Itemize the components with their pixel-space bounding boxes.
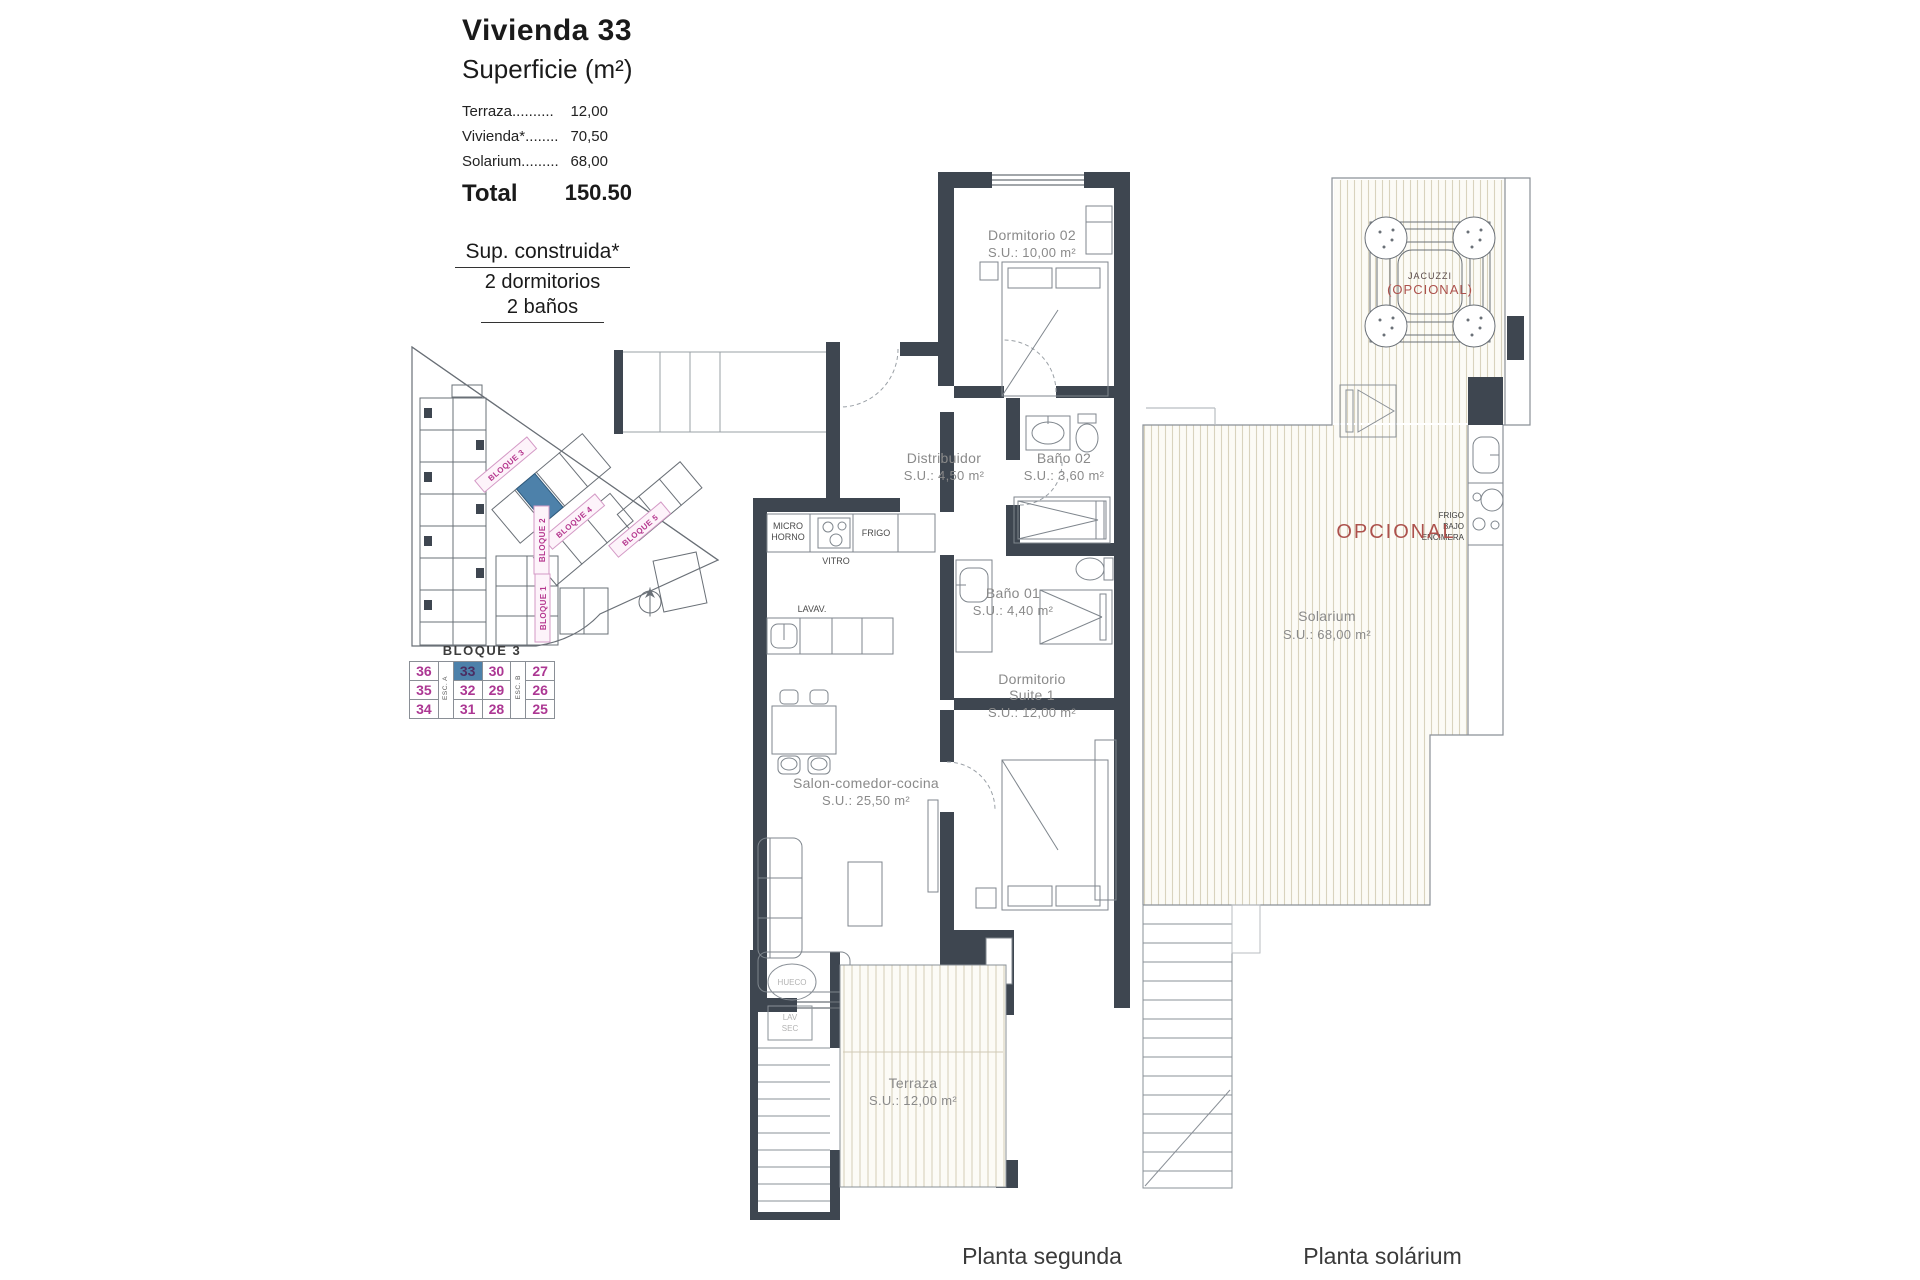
bloque2-label: BLOQUE 2	[534, 506, 549, 574]
vitro-label: VITRO	[822, 556, 850, 566]
stair-a-cell: ESC. A	[438, 662, 453, 719]
stairs-solarium	[1143, 905, 1260, 1188]
planta-solarium-plan: JACUZZI (OPCIONAL) FRIGO BAJO ENCIMERA O…	[1143, 178, 1530, 1188]
roof-duct	[1507, 316, 1524, 360]
caption-planta-segunda: Planta segunda	[962, 1243, 1122, 1270]
site-plan: BLOQUE 3 BLOQUE 4 BLOQUE 5 BLOQUE 2 BLOQ…	[412, 347, 718, 646]
jacuzzi-label: JACUZZI	[1408, 271, 1452, 281]
svg-text:BLOQUE 2: BLOQUE 2	[538, 518, 547, 562]
compass-icon	[639, 588, 661, 616]
lavav-label: LAVAV.	[798, 604, 827, 614]
table-row: 36 ESC. A 33 30 ESC. B 27	[410, 662, 555, 681]
caption-planta-solarium: Planta solárium	[1300, 1243, 1465, 1270]
terraza-area: S.U.: 12,00 m²	[869, 1093, 957, 1108]
suite-area: S.U.: 12,00 m²	[988, 705, 1076, 720]
unit-cell-28: 28	[482, 700, 511, 719]
bloque3-unit-table: BLOQUE 3 36 ESC. A 33 30 ESC. B 27 35 32…	[409, 643, 555, 719]
bano01-area: S.U.: 4,40 m²	[973, 603, 1054, 618]
suite-name: Dormitorio	[998, 671, 1066, 687]
unit-cell-26: 26	[526, 681, 555, 700]
unit-cell-33-highlighted: 33	[453, 662, 482, 681]
bano02-area: S.U.: 3,60 m²	[1024, 468, 1105, 483]
entry-landing	[614, 350, 826, 434]
unit-cell-34: 34	[410, 700, 439, 719]
solarium-area-label: S.U.: 68,00 m²	[1283, 627, 1371, 642]
suite-furniture	[928, 740, 1116, 910]
stair-a-label: ESC. A	[442, 676, 449, 700]
distribuidor-name: Distribuidor	[907, 450, 981, 466]
unit-cell-31: 31	[453, 700, 482, 719]
salon-furniture	[758, 690, 882, 992]
lavsec-label-1: LAV	[783, 1013, 798, 1022]
unit-cell-32: 32	[453, 681, 482, 700]
bloque1-label: BLOQUE 1	[535, 574, 550, 642]
suite-name2: Suite 1	[1009, 687, 1055, 703]
table-row: 35 32 29 26	[410, 681, 555, 700]
frigo-bajo-label-1: FRIGO	[1439, 511, 1464, 520]
distribuidor-area: S.U.: 4,50 m²	[904, 468, 985, 483]
svg-text:BLOQUE 1: BLOQUE 1	[539, 586, 548, 630]
terraced-strip-west	[420, 398, 486, 645]
micro-label-2: HORNO	[771, 532, 805, 542]
salon-area: S.U.: 25,50 m²	[822, 793, 910, 808]
dorm02-name: Dormitorio 02	[988, 227, 1076, 243]
bloque5-label: BLOQUE 5	[609, 502, 671, 557]
hueco-label: HUECO	[778, 978, 807, 987]
frigo-label: FRIGO	[862, 528, 891, 538]
kitchenette	[1468, 437, 1503, 545]
bloque3-table-title: BLOQUE 3	[409, 643, 555, 658]
unit-cell-35: 35	[410, 681, 439, 700]
terraced-strip-center	[496, 552, 707, 645]
floorplan-sheet: Vivienda 33 Superficie (m²) Terraza.....…	[0, 0, 1920, 1280]
unit-cell-27: 27	[526, 662, 555, 681]
unit-cell-25: 25	[526, 700, 555, 719]
planta-segunda-plan: Dormitorio 02 S.U.: 10,00 m² Distribuido…	[614, 172, 1130, 1220]
stair-b-cell: ESC. B	[511, 662, 526, 719]
solarium-area	[1143, 425, 1468, 905]
bano02-name: Baño 02	[1037, 450, 1091, 466]
window-dorm02	[992, 175, 1084, 185]
plan-drawing: BLOQUE 3 BLOQUE 4 BLOQUE 5 BLOQUE 2 BLOQ…	[0, 0, 1920, 1280]
dorm02-area: S.U.: 10,00 m²	[988, 245, 1076, 260]
salon-name: Salon-comedor-cocina	[793, 775, 939, 791]
opcional-label: OPCIONAL	[1336, 521, 1455, 543]
table-row: 34 31 28 25	[410, 700, 555, 719]
unit-cell-29: 29	[482, 681, 511, 700]
stair-b-label: ESC. B	[515, 675, 522, 699]
terraza-name: Terraza	[889, 1075, 938, 1091]
jacuzzi-opcional-label: (OPCIONAL)	[1387, 282, 1473, 297]
frigo-box	[1468, 377, 1503, 425]
micro-label-1: MICRO	[773, 521, 803, 531]
unit-cell-36: 36	[410, 662, 439, 681]
bano01-name: Baño 01	[986, 585, 1040, 601]
unit-cell-30: 30	[482, 662, 511, 681]
solarium-name: Solarium	[1298, 608, 1356, 624]
lavsec-label-2: SEC	[782, 1024, 799, 1033]
